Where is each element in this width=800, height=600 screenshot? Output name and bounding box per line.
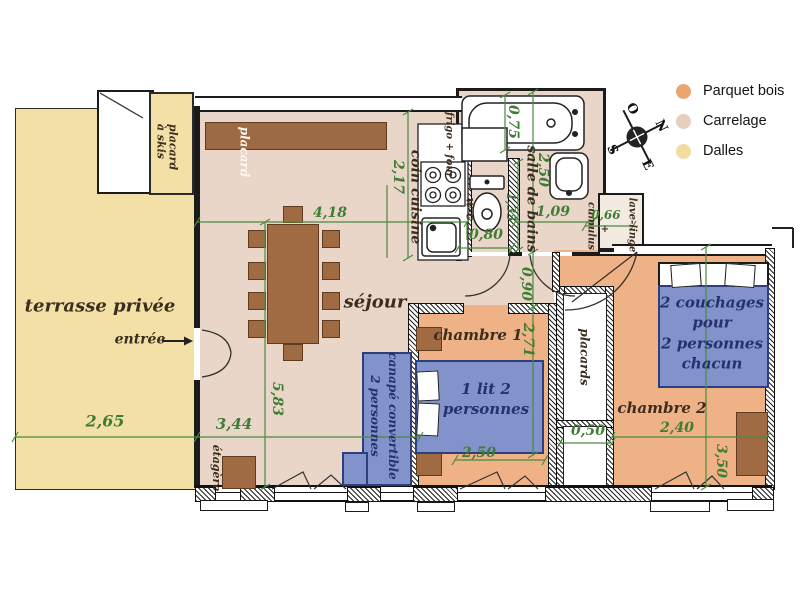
dim-terrasse-w: 2,65 (86, 412, 125, 431)
dim-ch2-w: 2,40 (660, 420, 694, 436)
dim-hall: 0,90 (518, 267, 534, 301)
placard-skis-label: placard à skis (155, 124, 178, 170)
dim-sejour-w: 4,18 (313, 205, 347, 221)
door-arc-chambre2 (565, 252, 637, 310)
dim-bain-w: 1,09 (536, 204, 570, 220)
terrasse-label: terrasse privée (25, 298, 176, 317)
placard-skis-line1: placard (167, 124, 179, 170)
dim-ch1-h: 2,71 (520, 323, 536, 357)
legend-item-carrelage: Carrelage (676, 113, 767, 129)
chambre1-label: chambre 1 (433, 328, 522, 344)
wc-label: w-c (464, 198, 477, 221)
dim-lit-w: 2,50 (462, 445, 496, 461)
canape-label: canapé convertible 2 personnes (366, 352, 402, 479)
cuisine-label: coin cuisine (408, 150, 423, 245)
door-arc-wc (465, 255, 510, 296)
placards-label: placards (578, 328, 591, 385)
chambre2-label: chambre 2 (617, 401, 706, 417)
frigo-four-label: frigo + four (443, 112, 454, 178)
dim-sejour-h: 5,83 (269, 382, 285, 416)
lave-linge-label: lave-linge (626, 198, 637, 253)
parquet-swatch-icon (676, 84, 691, 99)
legend-item-dalles: Dalles (676, 143, 743, 159)
carrelage-swatch-icon (676, 114, 691, 129)
wc-shelf (462, 128, 507, 161)
entree-label: entrée (115, 333, 166, 348)
dim-sejour-part: 3,44 (216, 415, 253, 433)
dalles-swatch-icon (676, 144, 691, 159)
placard-skis-line2: à skis (155, 124, 167, 170)
bed2-label: 2 couchages pour 2 personnes chacun (660, 293, 764, 374)
entree-arrow-icon (162, 337, 193, 346)
legend-label: Parquet bois (703, 83, 784, 99)
dim-ch2-h: 3,50 (713, 444, 729, 478)
door-arc-entree (202, 330, 231, 377)
dim-niche: 0,50 (571, 423, 605, 439)
door-line-placard-skis (100, 93, 143, 118)
bed1-label: 1 lit 2 personnes (443, 379, 529, 420)
dim-wc-w: 0,80 (469, 227, 503, 243)
placard-top-label: placard (238, 127, 251, 178)
dim-tub: 0,75 (505, 105, 521, 139)
etagere-label: étagère (210, 445, 222, 492)
sejour-label: séjour (344, 294, 407, 313)
dim-cuisine-h: 2,17 (390, 160, 406, 194)
window-casement (272, 472, 346, 489)
floor-plan: terrasse privée entrée séjour coin cuisi… (0, 0, 800, 600)
casement-windows (272, 472, 724, 489)
window-casement (460, 472, 538, 489)
door-arc-bain (530, 255, 575, 296)
legend-label: Carrelage (703, 113, 767, 129)
kitchen-sink-icon (422, 218, 460, 256)
legend-label: Dalles (703, 143, 743, 159)
dim-lave: 0,66 (591, 208, 620, 222)
dim-wc-h: 1,35 (504, 192, 518, 221)
exterior-marks (772, 228, 793, 248)
plus-label: + (601, 225, 609, 236)
dim-bain-h: 2,50 (535, 153, 551, 187)
legend-item-parquet: Parquet bois (676, 83, 784, 99)
washbasin-icon (550, 153, 588, 199)
